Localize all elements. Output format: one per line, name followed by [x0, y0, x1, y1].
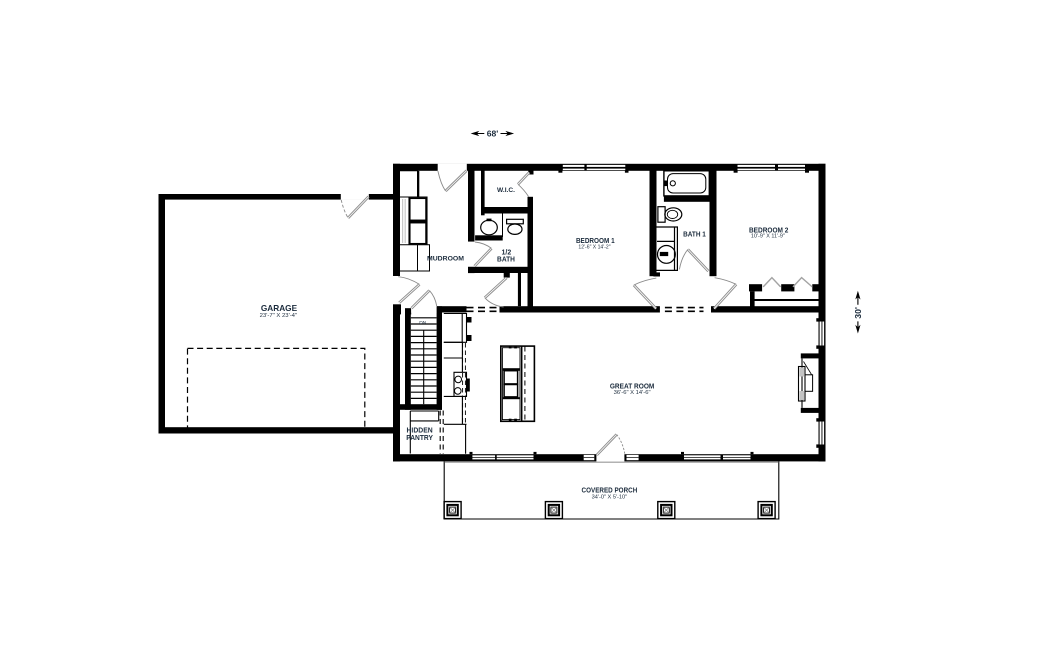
- svg-text:PANTRY: PANTRY: [406, 434, 433, 442]
- svg-text:36'-6" X 14'-6": 36'-6" X 14'-6": [614, 390, 651, 396]
- svg-text:23'-7" X 23'-4": 23'-7" X 23'-4": [260, 313, 297, 319]
- svg-text:68': 68': [487, 128, 499, 138]
- svg-text:MUDROOM: MUDROOM: [427, 255, 464, 262]
- svg-text:34'-0" X 5'-10": 34'-0" X 5'-10": [592, 494, 628, 500]
- svg-text:DN: DN: [419, 320, 427, 326]
- svg-text:GARAGE: GARAGE: [261, 303, 298, 313]
- svg-text:12'-6" X 14'-2": 12'-6" X 14'-2": [578, 245, 610, 251]
- svg-text:BATH: BATH: [497, 256, 515, 264]
- svg-text:W.I.C.: W.I.C.: [497, 187, 515, 194]
- svg-text:30': 30': [853, 307, 863, 319]
- svg-text:10'-9" X 11'-9": 10'-9" X 11'-9": [751, 234, 785, 240]
- svg-text:COVERED PORCH: COVERED PORCH: [582, 486, 638, 495]
- svg-text:BATH 1: BATH 1: [683, 231, 706, 239]
